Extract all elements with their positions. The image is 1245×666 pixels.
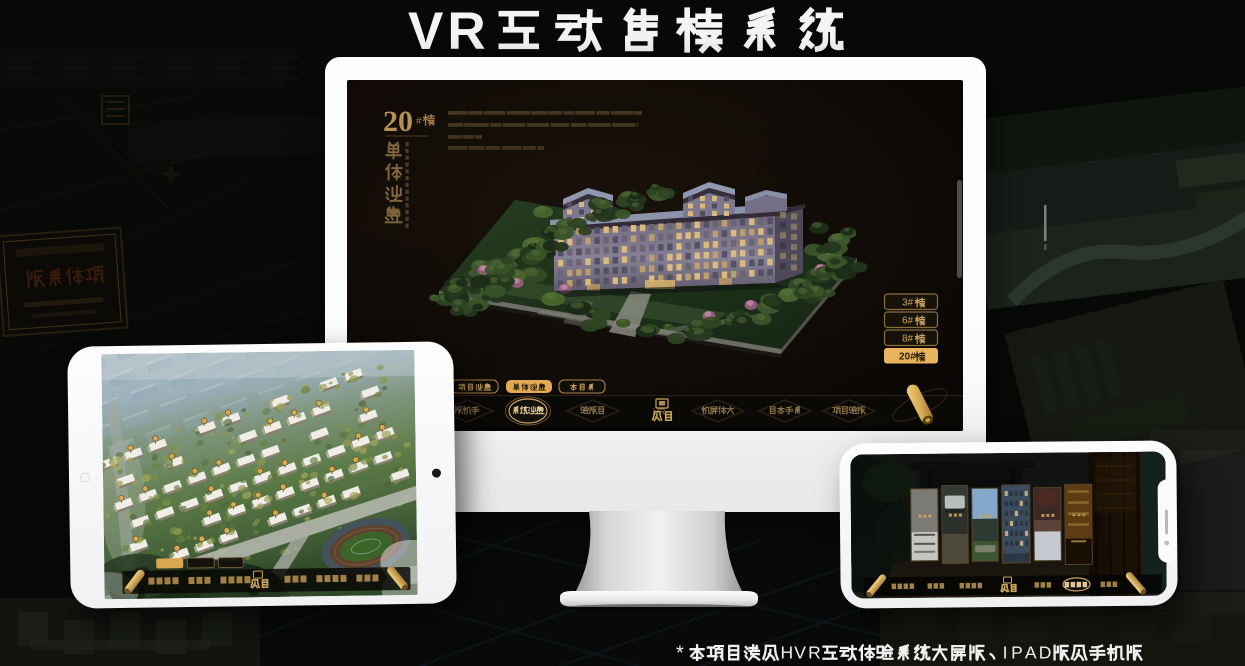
svg-text:A: A	[1025, 643, 1037, 663]
svg-text:*: *	[676, 643, 684, 665]
svg-text:I: I	[1003, 643, 1008, 663]
svg-text:V: V	[794, 643, 806, 663]
svg-text:VR: VR	[408, 2, 490, 60]
svg-text:H: H	[781, 643, 794, 663]
svg-text:P: P	[1011, 643, 1023, 663]
svg-text:3#: 3#	[902, 298, 914, 309]
svg-text:D: D	[1039, 643, 1052, 663]
svg-text:6#: 6#	[902, 316, 914, 327]
svg-text:R: R	[808, 643, 821, 663]
svg-text:20#: 20#	[899, 352, 916, 363]
svg-text:8#: 8#	[902, 334, 914, 345]
